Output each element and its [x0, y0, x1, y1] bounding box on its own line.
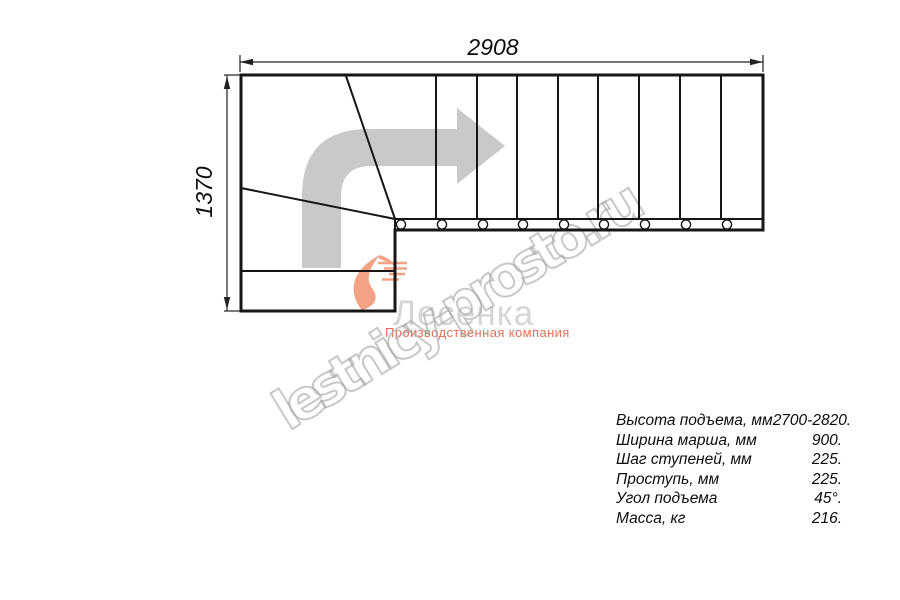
stair-plan-drawing: 2908 1370	[0, 0, 900, 600]
dimension-left: 1370	[191, 75, 240, 311]
stair-plan-page: Лесенка Производственная компания lestni…	[0, 0, 900, 600]
direction-arrow-icon	[302, 108, 505, 268]
fastener-circles	[396, 220, 731, 229]
dimension-top-label: 2908	[466, 34, 518, 60]
dimension-left-label: 1370	[191, 166, 217, 217]
dimension-top: 2908	[240, 34, 763, 72]
